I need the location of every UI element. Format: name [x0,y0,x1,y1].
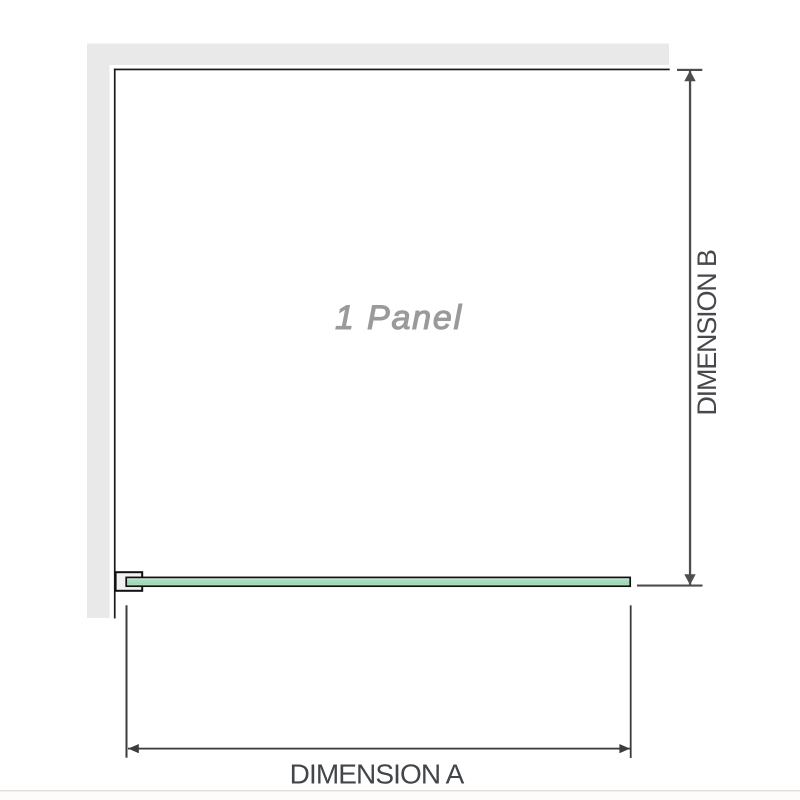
svg-text:1 Panel: 1 Panel [335,299,463,337]
svg-text:DIMENSION B: DIMENSION B [692,250,722,416]
svg-text:DIMENSION A: DIMENSION A [290,759,465,790]
